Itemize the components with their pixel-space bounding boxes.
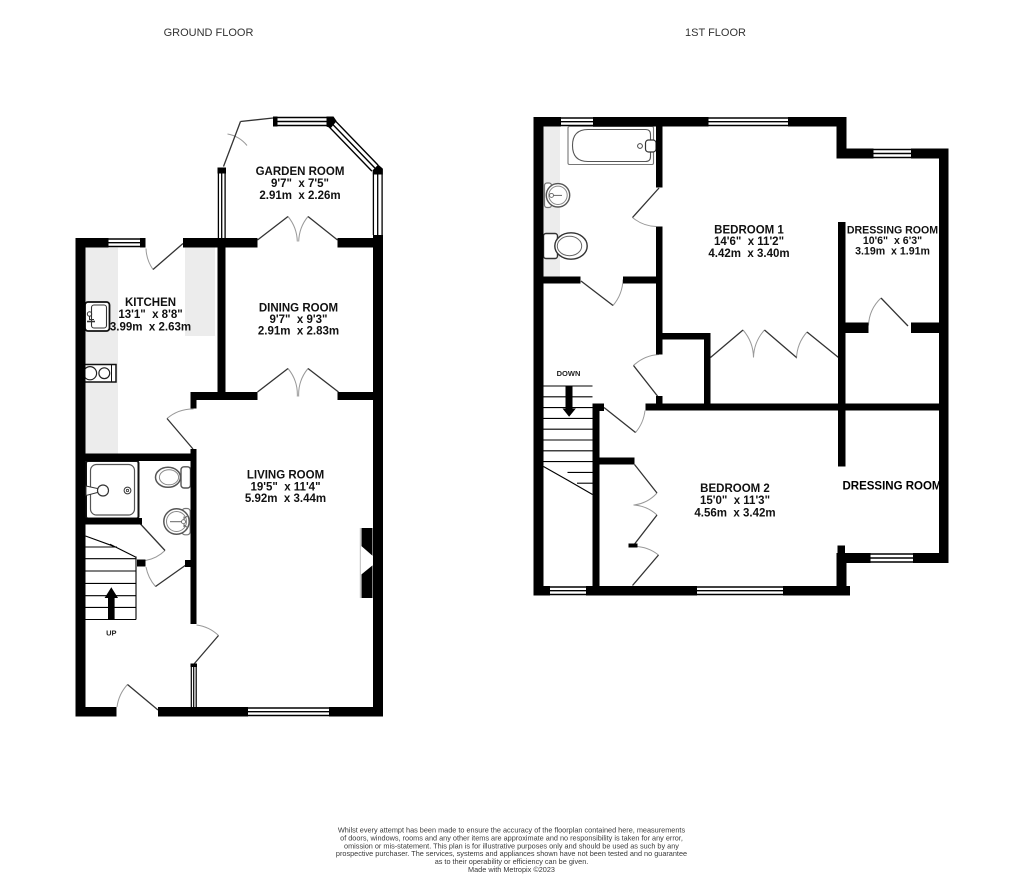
svg-text:KITCHEN: KITCHEN (125, 297, 176, 309)
svg-text:13'1" x 8'8": 13'1" x 8'8" (118, 309, 182, 321)
svg-text:3.19m x 1.91m: 3.19m x 1.91m (855, 246, 930, 258)
svg-text:DRESSING ROOM: DRESSING ROOM (842, 480, 941, 492)
svg-text:9'7" x 7'5": 9'7" x 7'5" (271, 178, 329, 190)
svg-text:2.91m x 2.26m: 2.91m x 2.26m (259, 190, 340, 202)
svg-text:5.92m x 3.44m: 5.92m x 3.44m (245, 493, 326, 505)
svg-text:15'0" x 11'3": 15'0" x 11'3" (700, 495, 770, 507)
svg-text:4.56m x 3.42m: 4.56m x 3.42m (694, 507, 775, 519)
svg-text:4.42m x 3.40m: 4.42m x 3.40m (708, 248, 789, 260)
svg-text:DINING ROOM: DINING ROOM (259, 302, 338, 314)
svg-text:14'6" x 11'2": 14'6" x 11'2" (714, 236, 784, 248)
svg-text:GROUND FLOOR: GROUND FLOOR (164, 27, 254, 39)
svg-text:Made with Metropix ©2023: Made with Metropix ©2023 (468, 865, 555, 874)
svg-text:19'5" x 11'4": 19'5" x 11'4" (250, 481, 320, 493)
svg-text:UP: UP (106, 628, 116, 637)
svg-text:3.99m x 2.63m: 3.99m x 2.63m (110, 322, 191, 334)
svg-text:BEDROOM 1: BEDROOM 1 (714, 224, 784, 236)
svg-text:1ST FLOOR: 1ST FLOOR (685, 27, 746, 39)
svg-text:9'7" x 9'3": 9'7" x 9'3" (270, 314, 328, 326)
svg-text:2.91m x 2.83m: 2.91m x 2.83m (258, 326, 339, 338)
svg-text:DOWN: DOWN (557, 369, 581, 378)
svg-text:BEDROOM 2: BEDROOM 2 (700, 483, 770, 495)
svg-text:LIVING ROOM: LIVING ROOM (247, 470, 324, 482)
svg-text:GARDEN ROOM: GARDEN ROOM (256, 166, 345, 178)
